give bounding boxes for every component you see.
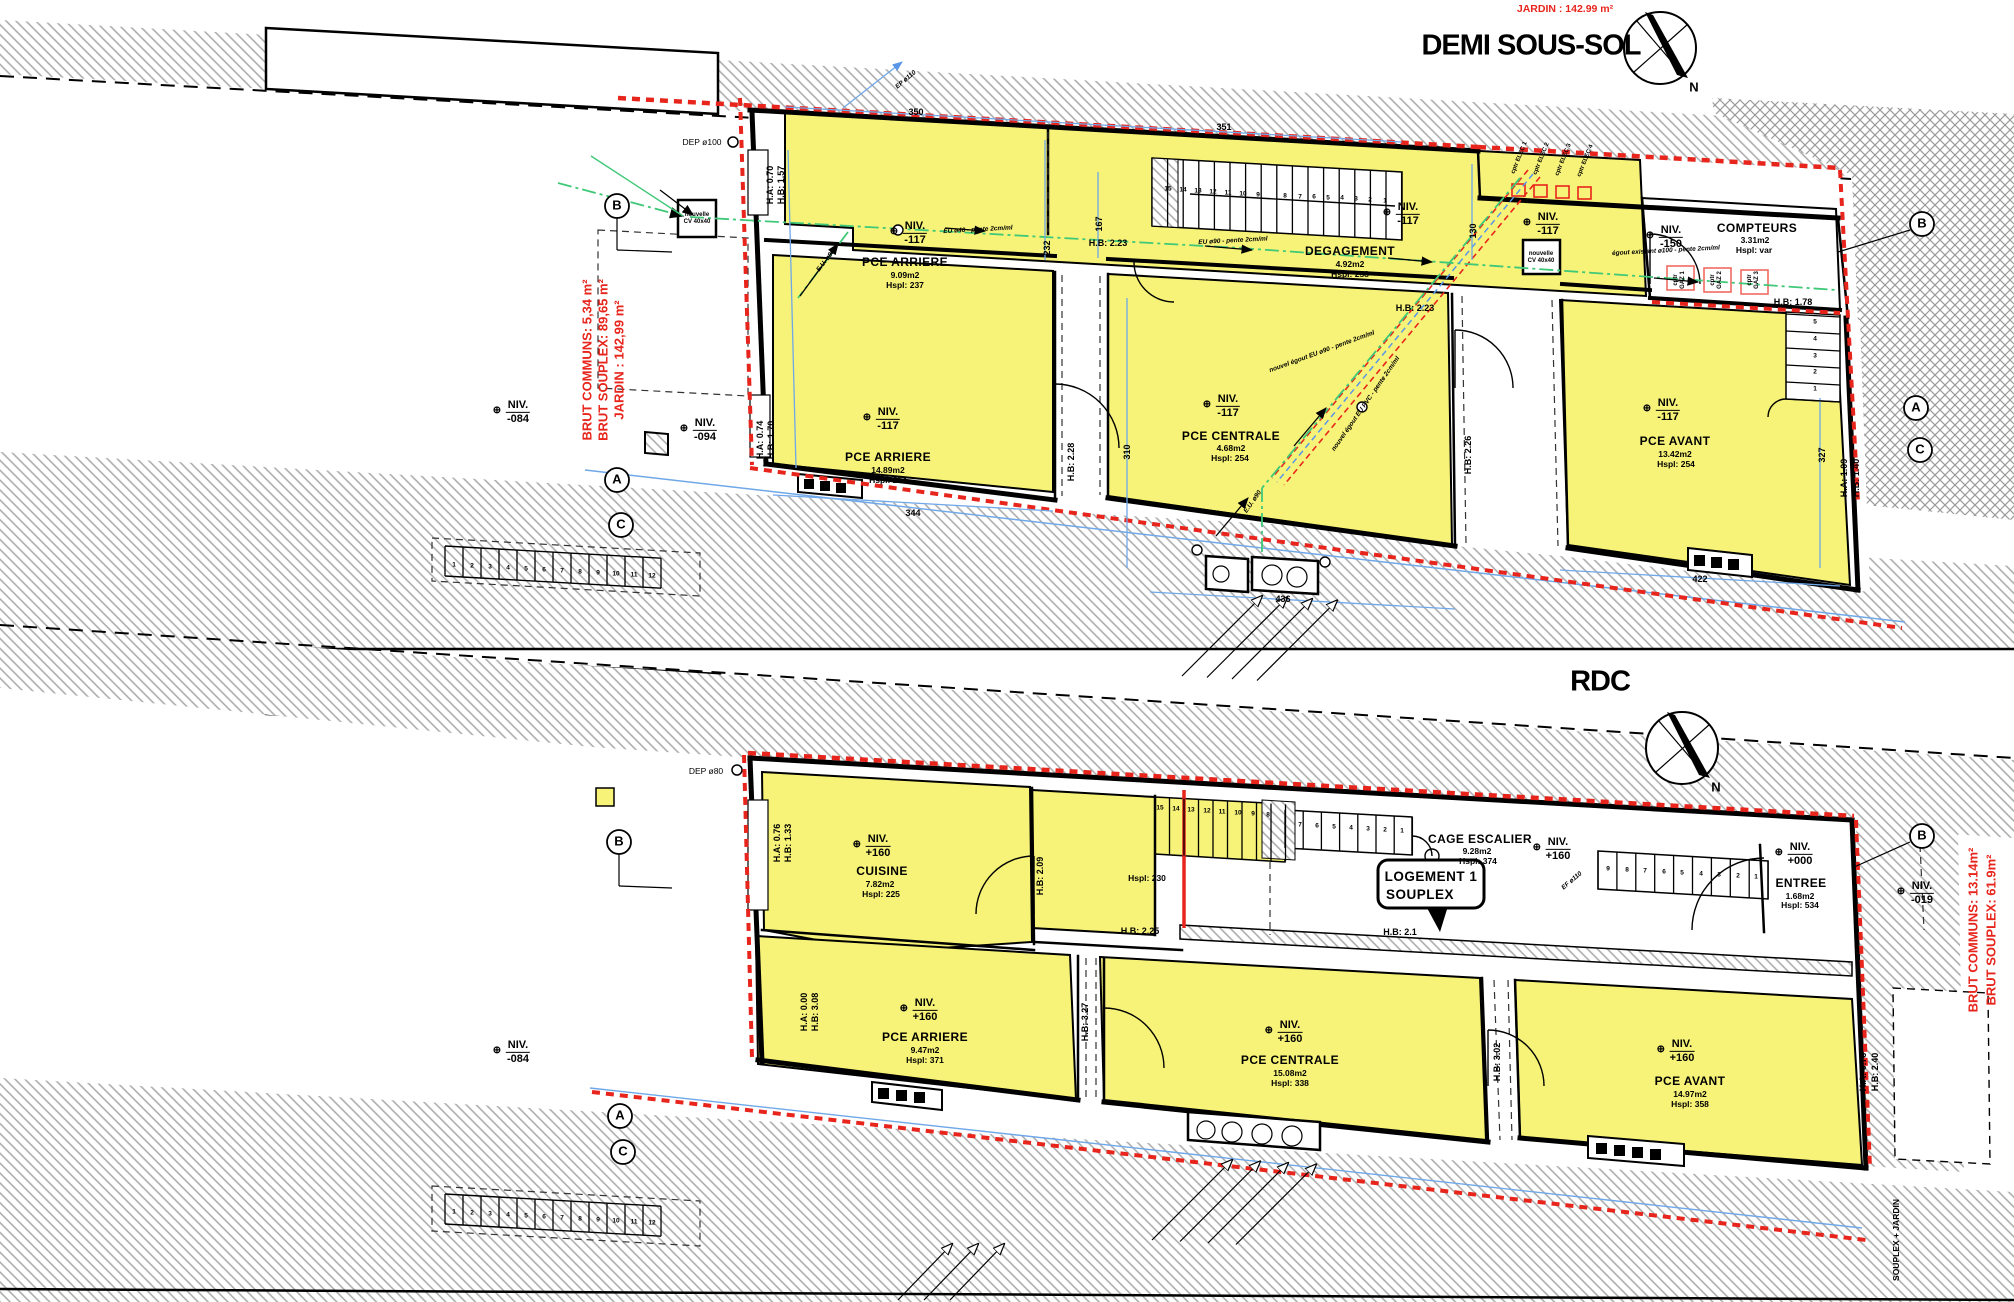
floorplan-drawing [0,0,2014,1302]
floorplan-sheet: DEMI SOUS-SOL JARDIN : 142.99 m² BRUT CO… [0,0,2014,1302]
north-compass-icon [1646,712,1718,784]
north-compass-icon [1624,12,1696,84]
